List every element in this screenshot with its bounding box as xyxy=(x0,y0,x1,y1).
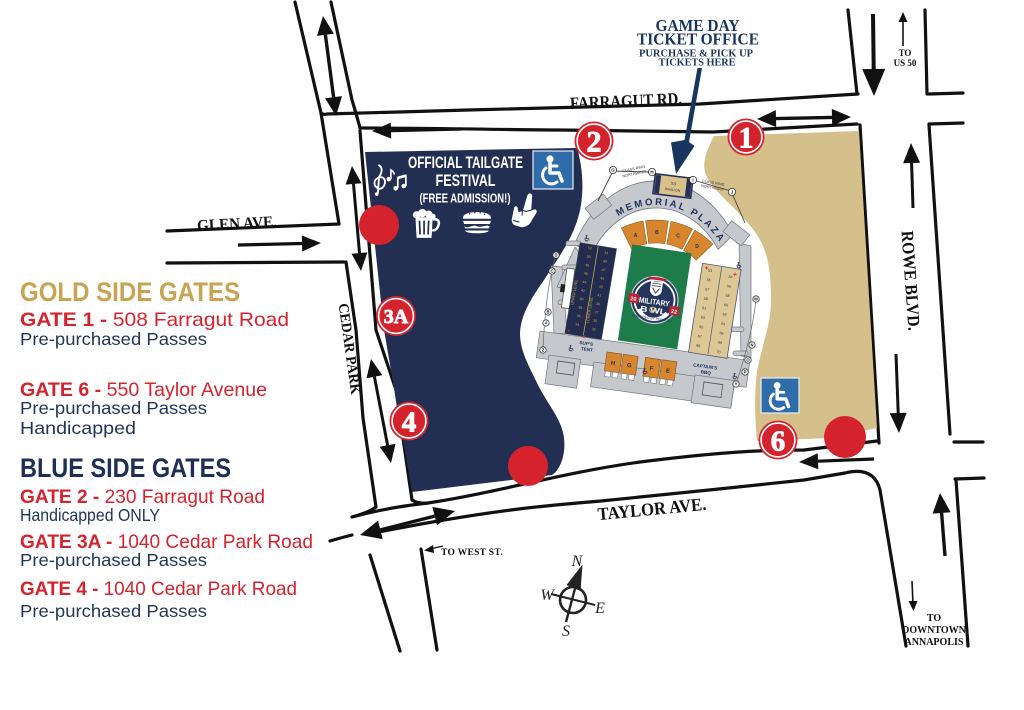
svg-text:I: I xyxy=(692,178,693,183)
svg-text:TO: TO xyxy=(899,48,912,58)
svg-text:TO WEST ST.: TO WEST ST. xyxy=(441,548,503,558)
svg-text:4: 4 xyxy=(402,406,417,438)
svg-text:DOWNTOWN: DOWNTOWN xyxy=(902,625,966,636)
svg-text:59: 59 xyxy=(703,297,708,302)
svg-text:US 50: US 50 xyxy=(894,58,917,68)
svg-text:40: 40 xyxy=(579,297,584,302)
svg-text:C: C xyxy=(550,269,553,274)
svg-text:TO: TO xyxy=(927,613,941,624)
svg-text:Z: Z xyxy=(542,348,545,353)
svg-text:S: S xyxy=(562,623,570,640)
svg-text:FESTIVAL: FESTIVAL xyxy=(436,172,496,190)
svg-text:55: 55 xyxy=(706,278,711,283)
svg-text:50: 50 xyxy=(586,254,591,259)
svg-text:N: N xyxy=(571,553,584,570)
svg-text:46: 46 xyxy=(583,271,588,276)
svg-text:53: 53 xyxy=(708,268,713,273)
svg-text:M: M xyxy=(754,297,758,302)
svg-text:P: P xyxy=(744,370,747,375)
svg-text:H: H xyxy=(650,170,653,175)
svg-text:33: 33 xyxy=(591,327,596,332)
svg-text:ANNAPOLIS: ANNAPOLIS xyxy=(905,637,964,648)
svg-text:63: 63 xyxy=(700,315,705,320)
svg-text:22: 22 xyxy=(671,309,678,316)
svg-text:E: E xyxy=(665,368,670,375)
svg-text:38: 38 xyxy=(578,305,583,310)
svg-text:39: 39 xyxy=(596,302,601,307)
svg-text:(FREE ADMISSION!): (FREE ADMISSION!) xyxy=(420,192,511,206)
svg-text:Pre-purchased Passes: Pre-purchased Passes xyxy=(20,329,207,349)
svg-text:60: 60 xyxy=(724,303,729,308)
svg-text:3A: 3A xyxy=(384,306,409,328)
svg-text:B: B xyxy=(546,310,549,315)
svg-text:68: 68 xyxy=(718,340,723,345)
svg-text:35: 35 xyxy=(593,319,598,324)
svg-text:A: A xyxy=(634,233,638,239)
svg-text:58: 58 xyxy=(725,294,730,299)
svg-text:Handicapped: Handicapped xyxy=(20,418,136,438)
svg-text:37: 37 xyxy=(594,310,599,315)
svg-text:34: 34 xyxy=(575,322,580,327)
svg-text:1: 1 xyxy=(739,122,754,155)
svg-text:52: 52 xyxy=(588,246,593,251)
svg-text:49: 49 xyxy=(603,259,608,264)
svg-text:2: 2 xyxy=(587,126,602,159)
svg-text:Pre-purchased Passes: Pre-purchased Passes xyxy=(20,601,207,621)
svg-text:41: 41 xyxy=(597,293,602,298)
svg-text:61: 61 xyxy=(702,306,707,311)
svg-text:H: H xyxy=(610,361,615,368)
svg-text:65: 65 xyxy=(699,325,704,330)
svg-text:51: 51 xyxy=(604,251,609,256)
svg-text:N: N xyxy=(750,343,753,348)
svg-text:BLUE SIDE GATES: BLUE SIDE GATES xyxy=(20,453,231,483)
svg-text:42: 42 xyxy=(581,288,586,293)
svg-text:TICKET OFFICE: TICKET OFFICE xyxy=(637,30,759,49)
svg-text:C: C xyxy=(676,234,680,240)
svg-text:44: 44 xyxy=(582,280,587,285)
svg-text:6: 6 xyxy=(771,425,786,457)
svg-text:36: 36 xyxy=(576,314,581,319)
svg-text:66: 66 xyxy=(719,331,724,336)
svg-text:Pre-purchased Passes: Pre-purchased Passes xyxy=(20,550,207,570)
svg-text:47: 47 xyxy=(601,268,606,273)
svg-text:Handicapped ONLY: Handicapped ONLY xyxy=(20,505,160,525)
svg-text:Y: Y xyxy=(735,382,738,387)
svg-text:GATE 1 - 508 Farragut Road: GATE 1 - 508 Farragut Road xyxy=(20,309,289,331)
svg-text:67: 67 xyxy=(698,334,703,339)
svg-text:GATE 4 - 1040 Cedar Park Road: GATE 4 - 1040 Cedar Park Road xyxy=(20,578,297,600)
svg-text:E: E xyxy=(594,600,605,617)
svg-text:45: 45 xyxy=(600,276,605,281)
svg-text:D: D xyxy=(554,253,557,258)
svg-text:A: A xyxy=(544,321,547,326)
svg-text:56: 56 xyxy=(727,284,732,289)
svg-text:Pre-purchased Passes: Pre-purchased Passes xyxy=(20,398,207,418)
svg-text:70: 70 xyxy=(716,350,721,355)
svg-text:20: 20 xyxy=(630,296,637,303)
svg-text:D: D xyxy=(695,244,699,250)
svg-text:W: W xyxy=(540,587,555,604)
svg-text:GOLD SIDE GATES: GOLD SIDE GATES xyxy=(20,277,240,307)
svg-text:B: B xyxy=(655,230,659,236)
svg-text:48: 48 xyxy=(585,263,590,268)
svg-text:69: 69 xyxy=(696,344,701,349)
svg-text:OFFICIAL TAILGATE: OFFICIAL TAILGATE xyxy=(408,154,523,172)
svg-text:64: 64 xyxy=(721,322,726,327)
svg-text:G: G xyxy=(611,168,615,173)
svg-text:57: 57 xyxy=(705,287,710,292)
svg-text:62: 62 xyxy=(722,312,727,317)
svg-text:TICKETS HERE: TICKETS HERE xyxy=(659,57,736,69)
svg-text:43: 43 xyxy=(599,285,604,290)
